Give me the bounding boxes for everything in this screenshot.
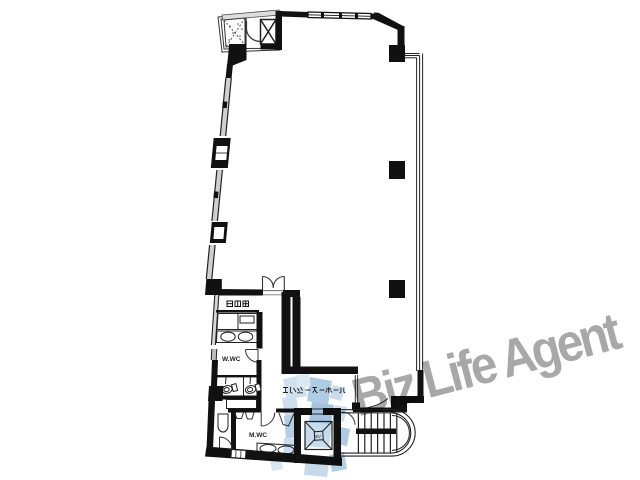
svg-text:M.WC: M.WC (249, 432, 267, 439)
svg-text:W.WC: W.WC (222, 356, 241, 363)
